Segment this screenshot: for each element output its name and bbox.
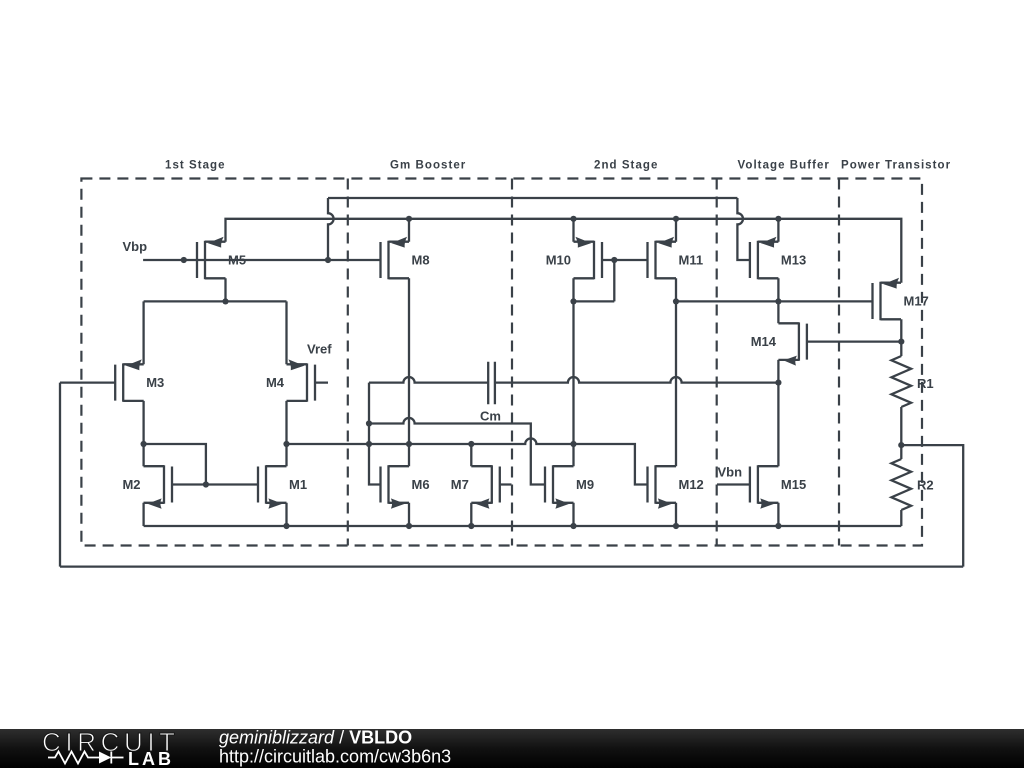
svg-text:http://circuitlab.com/cw3b6n3: http://circuitlab.com/cw3b6n3 (219, 747, 451, 767)
svg-text:Vbn: Vbn (718, 465, 743, 480)
svg-text:Vref: Vref (307, 342, 332, 357)
svg-text:LAB: LAB (128, 749, 174, 768)
svg-text:M8: M8 (412, 253, 430, 268)
svg-text:M17: M17 (904, 294, 929, 309)
svg-text:M9: M9 (576, 477, 594, 492)
svg-text:R1: R1 (917, 376, 934, 391)
svg-text:Vbp: Vbp (123, 239, 148, 254)
svg-text:M2: M2 (122, 477, 140, 492)
svg-text:M11: M11 (679, 253, 704, 268)
svg-text:Power Transistor: Power Transistor (841, 160, 951, 172)
svg-text:1st Stage: 1st Stage (165, 160, 226, 172)
svg-text:R2: R2 (917, 478, 934, 493)
svg-text:Gm Booster: Gm Booster (390, 160, 466, 172)
svg-text:2nd Stage: 2nd Stage (594, 160, 658, 172)
svg-text:M10: M10 (546, 253, 571, 268)
svg-text:M4: M4 (266, 375, 285, 390)
svg-text:M15: M15 (781, 477, 806, 492)
svg-text:M12: M12 (679, 477, 704, 492)
svg-text:M14: M14 (751, 334, 777, 349)
svg-text:M13: M13 (781, 253, 806, 268)
svg-text:M5: M5 (228, 253, 246, 268)
svg-text:M1: M1 (289, 477, 307, 492)
svg-text:geminiblizzard / VBLDO: geminiblizzard / VBLDO (219, 728, 412, 748)
svg-text:M3: M3 (146, 375, 164, 390)
svg-text:M7: M7 (451, 477, 469, 492)
svg-text:Cm: Cm (480, 409, 501, 424)
svg-text:Voltage Buffer: Voltage Buffer (738, 160, 830, 172)
svg-text:M6: M6 (412, 477, 430, 492)
